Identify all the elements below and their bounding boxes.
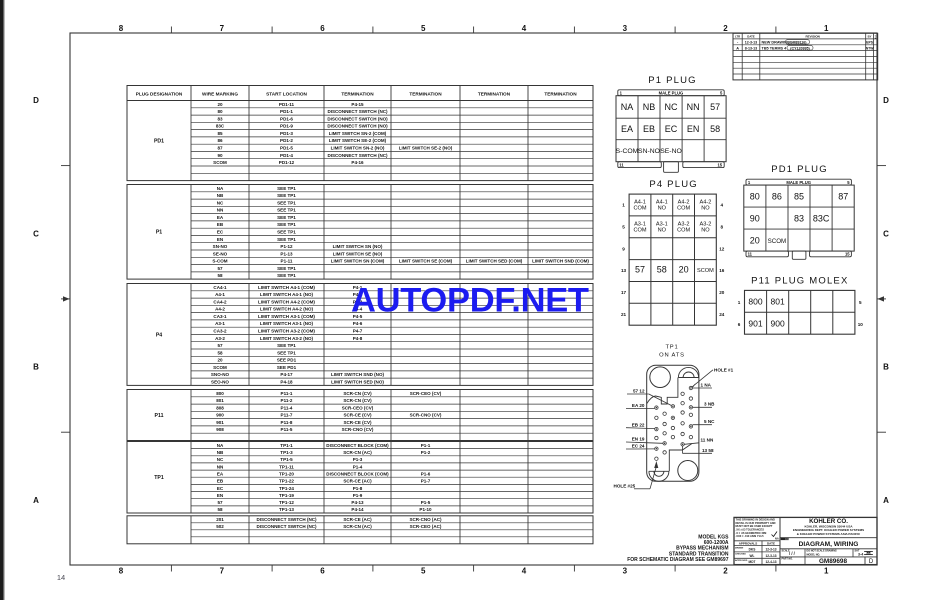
svg-text:P1-5: P1-5 bbox=[421, 500, 431, 505]
svg-text:PD1-9: PD1-9 bbox=[280, 124, 293, 129]
svg-text:PD1-11: PD1-11 bbox=[279, 102, 295, 107]
svg-text:8: 8 bbox=[119, 567, 124, 576]
svg-text:20: 20 bbox=[217, 102, 223, 107]
svg-text:NC: NC bbox=[665, 102, 678, 112]
svg-text:90: 90 bbox=[217, 153, 223, 158]
svg-text:14: 14 bbox=[57, 573, 65, 582]
svg-text:SEE TP1: SEE TP1 bbox=[277, 186, 296, 191]
svg-text:P11-8: P11-8 bbox=[281, 420, 293, 425]
svg-text:CA4-2: CA4-2 bbox=[213, 299, 227, 304]
svg-text:WL: WL bbox=[750, 554, 755, 558]
svg-text:12: 12 bbox=[719, 246, 725, 251]
svg-text:SN-NO: SN-NO bbox=[638, 148, 660, 155]
svg-text:1: 1 bbox=[824, 24, 829, 33]
svg-text:LIMIT SWITCH A3-2 (COM): LIMIT SWITCH A3-2 (COM) bbox=[258, 329, 315, 334]
svg-text:TERMINATION: TERMINATION bbox=[409, 91, 442, 96]
svg-text:20: 20 bbox=[750, 236, 760, 246]
svg-text:LIMIT SWITCH A4-1 (NO): LIMIT SWITCH A4-1 (NO) bbox=[260, 292, 314, 297]
svg-text:DO NOT SCALE DRAWING: DO NOT SCALE DRAWING bbox=[807, 549, 837, 552]
svg-text:57: 57 bbox=[710, 102, 720, 112]
svg-text:P11-7: P11-7 bbox=[281, 413, 293, 418]
svg-text:83C: 83C bbox=[216, 124, 225, 129]
svg-text:PD1-1: PD1-1 bbox=[280, 109, 293, 114]
svg-text:REVISION: REVISION bbox=[806, 35, 820, 39]
svg-text:NN: NN bbox=[217, 464, 224, 469]
svg-text:6: 6 bbox=[320, 24, 325, 33]
svg-text:NA: NA bbox=[621, 102, 634, 112]
svg-text:DATE: DATE bbox=[767, 542, 775, 546]
svg-text:57: 57 bbox=[217, 266, 223, 271]
svg-text:16: 16 bbox=[719, 268, 725, 273]
svg-text:P1-1: P1-1 bbox=[421, 443, 431, 448]
svg-text:LIMIT SWITCH SED (COM): LIMIT SWITCH SED (COM) bbox=[466, 259, 523, 264]
svg-text:P4-14: P4-14 bbox=[351, 507, 364, 512]
svg-text:12-3-13: 12-3-13 bbox=[766, 554, 777, 558]
svg-text:TP1-11: TP1-11 bbox=[279, 464, 294, 469]
svg-text:DISCONNECT SWITCH (NC): DISCONNECT SWITCH (NC) bbox=[256, 524, 317, 529]
svg-text:ON ATS: ON ATS bbox=[659, 353, 685, 359]
svg-text:P11-1: P11-1 bbox=[281, 391, 293, 396]
svg-text:LIMIT SWITCH SN-2 (COM): LIMIT SWITCH SN-2 (COM) bbox=[329, 131, 387, 136]
svg-text:EN: EN bbox=[217, 493, 223, 498]
svg-text:S-COM: S-COM bbox=[212, 259, 227, 264]
svg-text:SNO-NO: SNO-NO bbox=[211, 372, 230, 377]
svg-text:DKS: DKS bbox=[749, 548, 756, 552]
svg-text:LIMIT SWITCH SE (NO): LIMIT SWITCH SE (NO) bbox=[333, 251, 383, 256]
svg-text:P1-3: P1-3 bbox=[353, 457, 363, 462]
svg-text:(CY120995): (CY120995) bbox=[790, 46, 810, 50]
svg-text:BY: BY bbox=[868, 35, 872, 39]
svg-text:MDT: MDT bbox=[749, 560, 756, 564]
svg-text:WIRE MARKING: WIRE MARKING bbox=[202, 91, 238, 96]
svg-text:NO: NO bbox=[701, 227, 710, 233]
svg-text:SCR-CN (CV): SCR-CN (CV) bbox=[343, 398, 372, 403]
svg-text:P4-6: P4-6 bbox=[353, 321, 363, 326]
svg-text:20: 20 bbox=[217, 358, 223, 363]
svg-text:80: 80 bbox=[217, 109, 223, 114]
svg-text:SEE TP1: SEE TP1 bbox=[277, 208, 296, 213]
svg-text:LIMIT SWITCH A3-2 (NO): LIMIT SWITCH A3-2 (NO) bbox=[260, 336, 314, 341]
svg-text:SCR-CE (CV): SCR-CE (CV) bbox=[343, 413, 372, 418]
svg-text:5 NC: 5 NC bbox=[704, 419, 715, 424]
svg-text:CHECKED: CHECKED bbox=[735, 554, 746, 556]
svg-text:15: 15 bbox=[845, 252, 850, 257]
svg-text:D: D bbox=[883, 96, 889, 105]
svg-text:NTW: NTW bbox=[866, 46, 875, 50]
svg-text:20: 20 bbox=[719, 290, 725, 295]
svg-text:8: 8 bbox=[721, 225, 724, 230]
svg-text:APPROVALS: APPROVALS bbox=[739, 542, 757, 546]
svg-text:TP1-5: TP1-5 bbox=[280, 457, 293, 462]
svg-text:CA4-1: CA4-1 bbox=[213, 285, 227, 290]
svg-text:COM: COM bbox=[677, 206, 690, 212]
svg-text:P4-16: P4-16 bbox=[351, 160, 364, 165]
svg-text:& KOHLER POWER SYSTEMS ASIA PA: & KOHLER POWER SYSTEMS ASIA PACIFIC bbox=[797, 532, 861, 536]
svg-text:DISCONNECT SWITCH (NC): DISCONNECT SWITCH (NC) bbox=[327, 109, 388, 114]
svg-text:A: A bbox=[736, 46, 739, 50]
svg-text:9: 9 bbox=[622, 246, 625, 251]
svg-text:57: 57 bbox=[217, 500, 223, 505]
svg-text:SEE TP1: SEE TP1 bbox=[277, 266, 296, 271]
svg-text:P1-2: P1-2 bbox=[421, 450, 431, 455]
svg-text:86: 86 bbox=[772, 192, 782, 202]
svg-text:SEE TP1: SEE TP1 bbox=[277, 273, 296, 278]
svg-text:LIMIT SWITCH SND (NO): LIMIT SWITCH SND (NO) bbox=[331, 372, 385, 377]
svg-text:LIMIT SWITCH SN (NO): LIMIT SWITCH SN (NO) bbox=[333, 244, 383, 249]
svg-text:TERMINATION: TERMINATION bbox=[478, 91, 511, 96]
svg-text:SEE TP1: SEE TP1 bbox=[277, 200, 296, 205]
svg-text:SCR-CE (AC): SCR-CE (AC) bbox=[343, 479, 372, 484]
svg-text:P1-11: P1-11 bbox=[281, 259, 293, 264]
svg-text:TB5 TERMS 4: TB5 TERMS 4 bbox=[762, 46, 788, 50]
svg-text:NC: NC bbox=[217, 457, 224, 462]
svg-text:EN: EN bbox=[217, 237, 223, 242]
svg-text:PLUG DESIGNATION: PLUG DESIGNATION bbox=[136, 91, 183, 96]
svg-text:1 NA: 1 NA bbox=[701, 383, 712, 388]
svg-text:(GM89116): (GM89116) bbox=[789, 40, 808, 44]
svg-text:LIMIT SWITCH A4-2 (COM): LIMIT SWITCH A4-2 (COM) bbox=[258, 299, 315, 304]
svg-text:5: 5 bbox=[421, 24, 426, 33]
svg-text:87: 87 bbox=[838, 192, 848, 202]
svg-text:58: 58 bbox=[657, 265, 667, 275]
svg-text:A4-2: A4-2 bbox=[215, 307, 225, 312]
svg-text:12-4-13: 12-4-13 bbox=[766, 560, 777, 564]
svg-text:EC: EC bbox=[665, 124, 678, 134]
svg-text:EB: EB bbox=[217, 222, 224, 227]
svg-text:2: 2 bbox=[723, 567, 728, 576]
svg-text:12-3-13: 12-3-13 bbox=[745, 40, 757, 44]
svg-text:5: 5 bbox=[421, 567, 426, 576]
svg-text:3: 3 bbox=[623, 24, 628, 33]
svg-text:EA: EA bbox=[217, 472, 224, 477]
svg-text:15: 15 bbox=[717, 163, 722, 168]
svg-text:SEE TP1: SEE TP1 bbox=[277, 237, 296, 242]
svg-text:EN: EN bbox=[687, 124, 700, 134]
svg-text:/ / /: / / / bbox=[789, 551, 796, 556]
svg-text:TP1-13: TP1-13 bbox=[279, 507, 294, 512]
svg-text:502: 502 bbox=[216, 524, 224, 529]
svg-text:SEE TP1: SEE TP1 bbox=[277, 215, 296, 220]
svg-text:NC: NC bbox=[217, 200, 224, 205]
svg-text:MODEL NO.: MODEL NO. bbox=[807, 554, 821, 557]
svg-text:85: 85 bbox=[217, 131, 223, 136]
svg-text:1: 1 bbox=[738, 300, 741, 305]
svg-text:PD1: PD1 bbox=[154, 138, 164, 144]
svg-text:LIMIT SWITCH SE-2 (NO): LIMIT SWITCH SE-2 (NO) bbox=[399, 146, 453, 151]
svg-text:APPROVED: APPROVED bbox=[735, 559, 748, 562]
svg-text:MALE PLUG: MALE PLUG bbox=[786, 180, 811, 185]
svg-text:58: 58 bbox=[217, 507, 223, 512]
svg-text:.XXX ± .010 ANSI Y14.5: .XXX ± .010 ANSI Y14.5 bbox=[736, 534, 765, 538]
svg-text:CA3-2: CA3-2 bbox=[213, 329, 227, 334]
svg-text:TERMINATION: TERMINATION bbox=[341, 91, 374, 96]
svg-text:4: 4 bbox=[522, 567, 527, 576]
svg-text:EPS: EPS bbox=[866, 40, 874, 44]
svg-text:P4-15: P4-15 bbox=[351, 102, 364, 107]
svg-text:SEE TP1: SEE TP1 bbox=[277, 350, 296, 355]
svg-text:EC: EC bbox=[217, 230, 224, 235]
svg-text:DISCONNECT SWITCH (NC): DISCONNECT SWITCH (NC) bbox=[256, 517, 317, 522]
svg-text:COM: COM bbox=[633, 206, 646, 212]
svg-text:DIAGRAM, WIRING: DIAGRAM, WIRING bbox=[799, 541, 859, 548]
svg-text:DISCONNECT BLOCK (COM): DISCONNECT BLOCK (COM) bbox=[326, 443, 389, 448]
svg-text:12-3-13: 12-3-13 bbox=[766, 548, 777, 552]
svg-text:DISCONNECT SWITCH (NC): DISCONNECT SWITCH (NC) bbox=[327, 153, 388, 158]
svg-text:NB: NB bbox=[217, 450, 224, 455]
svg-text:PART NO.: PART NO. bbox=[782, 557, 794, 560]
svg-text:SEE PD1: SEE PD1 bbox=[277, 358, 297, 363]
svg-text:B: B bbox=[33, 363, 39, 372]
svg-text:P11: P11 bbox=[155, 413, 164, 419]
svg-text:LIMIT SWITCH SED (NO): LIMIT SWITCH SED (NO) bbox=[331, 380, 384, 385]
svg-text:8-13-13: 8-13-13 bbox=[745, 46, 757, 50]
svg-text:P4-8: P4-8 bbox=[353, 336, 363, 341]
svg-text:5: 5 bbox=[859, 300, 862, 305]
svg-text:A: A bbox=[33, 496, 39, 505]
svg-text:4: 4 bbox=[522, 24, 527, 33]
svg-text:PD1-4: PD1-4 bbox=[280, 153, 293, 158]
svg-text:NA: NA bbox=[217, 443, 224, 448]
svg-text:A4-1: A4-1 bbox=[215, 292, 225, 297]
svg-text:1: 1 bbox=[824, 567, 829, 576]
svg-text:DISCONNECT SWITCH (NO): DISCONNECT SWITCH (NO) bbox=[327, 124, 388, 129]
svg-text:TP1-22: TP1-22 bbox=[279, 479, 294, 484]
svg-text:P1-12: P1-12 bbox=[280, 244, 293, 249]
svg-text:6: 6 bbox=[320, 567, 325, 576]
svg-text:TP1-19: TP1-19 bbox=[279, 493, 294, 498]
svg-text:7: 7 bbox=[220, 567, 225, 576]
svg-text:13 58: 13 58 bbox=[702, 448, 714, 453]
svg-text:85: 85 bbox=[794, 192, 804, 202]
svg-text:17: 17 bbox=[621, 290, 627, 295]
svg-text:P4-17: P4-17 bbox=[280, 372, 293, 377]
svg-text:C: C bbox=[33, 229, 39, 238]
svg-text:3: 3 bbox=[623, 567, 628, 576]
svg-text:NO: NO bbox=[658, 206, 667, 212]
svg-text:P11-4: P11-4 bbox=[281, 405, 293, 410]
svg-text:TERMINATION: TERMINATION bbox=[544, 91, 577, 96]
svg-text:EC 24: EC 24 bbox=[632, 444, 645, 449]
svg-text:SCR-CEO (AC): SCR-CEO (AC) bbox=[410, 524, 442, 529]
svg-text:START LOCATION: START LOCATION bbox=[266, 91, 307, 96]
svg-text:SCR-CNO (AC): SCR-CNO (AC) bbox=[409, 517, 442, 522]
svg-text:TP1-24: TP1-24 bbox=[279, 486, 294, 491]
svg-text:908: 908 bbox=[216, 427, 224, 432]
svg-text:P1 PLUG: P1 PLUG bbox=[648, 75, 697, 86]
svg-text:80: 80 bbox=[750, 192, 760, 202]
svg-text:5: 5 bbox=[622, 225, 625, 230]
svg-text:EB: EB bbox=[643, 124, 655, 134]
svg-text:SCR-CN (AC): SCR-CN (AC) bbox=[343, 524, 372, 529]
svg-text:P1-13: P1-13 bbox=[280, 251, 293, 256]
svg-text:3 NB: 3 NB bbox=[704, 402, 715, 407]
svg-text:COM: COM bbox=[677, 227, 690, 233]
svg-text:PD1 PLUG: PD1 PLUG bbox=[771, 164, 828, 175]
svg-text:SEE TP1: SEE TP1 bbox=[277, 343, 296, 348]
svg-text:SN-NO: SN-NO bbox=[213, 244, 228, 249]
svg-text:NA: NA bbox=[217, 186, 224, 191]
svg-text:LIMIT SWITCH A4-1 (COM): LIMIT SWITCH A4-1 (COM) bbox=[258, 285, 315, 290]
svg-text:P11-2: P11-2 bbox=[281, 398, 293, 403]
svg-text:11 NN: 11 NN bbox=[701, 438, 714, 443]
svg-text:DATE: DATE bbox=[747, 35, 755, 39]
svg-text:LIMIT SWITCH SND (COM): LIMIT SWITCH SND (COM) bbox=[532, 259, 589, 264]
svg-text:P4-13: P4-13 bbox=[351, 500, 364, 505]
svg-text:201: 201 bbox=[216, 517, 224, 522]
svg-text:83C: 83C bbox=[813, 214, 830, 224]
svg-text:901: 901 bbox=[216, 420, 224, 425]
svg-text:DISCONNECT BLOCK (COM): DISCONNECT BLOCK (COM) bbox=[326, 472, 389, 477]
svg-text:PD1-6: PD1-6 bbox=[280, 116, 293, 121]
svg-text:SCOM: SCOM bbox=[213, 160, 227, 165]
svg-text:NO: NO bbox=[701, 206, 710, 212]
svg-text:TITLE: TITLE bbox=[785, 539, 791, 541]
svg-text:P1-9: P1-9 bbox=[353, 493, 363, 498]
svg-text:P11 PLUG MOLEX: P11 PLUG MOLEX bbox=[751, 276, 848, 287]
svg-text:EA: EA bbox=[217, 215, 224, 220]
svg-text:PD1-3: PD1-3 bbox=[280, 131, 293, 136]
svg-text:11: 11 bbox=[748, 252, 753, 257]
svg-text:8: 8 bbox=[119, 24, 124, 33]
svg-text:P4-18: P4-18 bbox=[280, 380, 293, 385]
svg-text:TP1: TP1 bbox=[665, 345, 678, 351]
svg-text:900: 900 bbox=[771, 318, 785, 328]
svg-text:LIMIT SWITCH A4-2 (NO): LIMIT SWITCH A4-2 (NO) bbox=[260, 307, 314, 312]
svg-text:86: 86 bbox=[217, 138, 223, 143]
svg-text:808: 808 bbox=[216, 405, 224, 410]
svg-text:A3-2: A3-2 bbox=[215, 336, 225, 341]
svg-text:SEE TP1: SEE TP1 bbox=[277, 222, 296, 227]
svg-text:24: 24 bbox=[719, 312, 725, 317]
svg-text:P1-6: P1-6 bbox=[421, 472, 431, 477]
svg-text:800: 800 bbox=[216, 391, 224, 396]
svg-text:P4 PLUG: P4 PLUG bbox=[649, 179, 698, 190]
svg-text:83: 83 bbox=[217, 116, 223, 121]
svg-text:P4: P4 bbox=[156, 332, 162, 338]
svg-text:6: 6 bbox=[738, 322, 741, 327]
svg-text:CA3-1: CA3-1 bbox=[213, 314, 227, 319]
svg-text:57: 57 bbox=[635, 265, 645, 275]
svg-text:10: 10 bbox=[858, 322, 864, 327]
svg-text:57: 57 bbox=[217, 343, 223, 348]
svg-text:EB 22: EB 22 bbox=[632, 422, 645, 427]
svg-text:P11-5: P11-5 bbox=[281, 427, 293, 432]
svg-text:PD1-2: PD1-2 bbox=[280, 138, 293, 143]
svg-text:EB: EB bbox=[217, 479, 224, 484]
svg-text:13: 13 bbox=[621, 268, 627, 273]
svg-text:TP1-1: TP1-1 bbox=[280, 443, 293, 448]
svg-text:SCR-CNO (CV): SCR-CNO (CV) bbox=[342, 427, 374, 432]
svg-text:900: 900 bbox=[216, 413, 224, 418]
svg-text:EN 19: EN 19 bbox=[632, 437, 645, 442]
svg-text:1: 1 bbox=[622, 203, 625, 208]
svg-text:TP1: TP1 bbox=[154, 475, 164, 481]
svg-text:DISCONNECT SWITCH (NO): DISCONNECT SWITCH (NO) bbox=[327, 116, 388, 121]
svg-text:SCOM: SCOM bbox=[768, 238, 787, 245]
svg-text:801: 801 bbox=[216, 398, 224, 403]
svg-text:LIMIT SWITCH SE-2 (COM): LIMIT SWITCH SE-2 (COM) bbox=[329, 138, 387, 143]
svg-text:4: 4 bbox=[721, 203, 724, 208]
svg-text:21: 21 bbox=[621, 312, 627, 317]
svg-text:B: B bbox=[883, 363, 889, 372]
svg-text:20: 20 bbox=[679, 265, 689, 275]
svg-text:NB: NB bbox=[643, 102, 656, 112]
svg-text:D: D bbox=[869, 559, 874, 565]
svg-text:AUTOPDF.NET: AUTOPDF.NET bbox=[351, 282, 589, 320]
svg-text:SEE TP1: SEE TP1 bbox=[277, 230, 296, 235]
svg-text:SEE PD1: SEE PD1 bbox=[277, 365, 297, 370]
svg-text:90: 90 bbox=[750, 214, 760, 224]
svg-text:800: 800 bbox=[748, 297, 762, 307]
svg-text:SCR-CN (AC): SCR-CN (AC) bbox=[343, 450, 372, 455]
svg-text:SEE TP1: SEE TP1 bbox=[277, 193, 296, 198]
svg-text:TP1-20: TP1-20 bbox=[279, 472, 294, 477]
svg-text:LTR: LTR bbox=[735, 35, 740, 39]
svg-text:SCR-CE (AC): SCR-CE (AC) bbox=[343, 517, 372, 522]
svg-text:NO: NO bbox=[658, 227, 667, 233]
svg-text:SCOM: SCOM bbox=[213, 365, 227, 370]
svg-text:P4-7: P4-7 bbox=[353, 329, 363, 334]
svg-text:58: 58 bbox=[710, 124, 720, 134]
svg-text:57 12: 57 12 bbox=[633, 389, 645, 394]
svg-text:LIMIT SWITCH SN (COM): LIMIT SWITCH SN (COM) bbox=[331, 259, 385, 264]
svg-text:EC: EC bbox=[217, 486, 224, 491]
svg-text:P1: P1 bbox=[156, 230, 162, 236]
svg-text:TP1-3: TP1-3 bbox=[280, 450, 293, 455]
svg-text:SCR-CNO (CV): SCR-CNO (CV) bbox=[410, 413, 442, 418]
svg-text:SEO-NO: SEO-NO bbox=[211, 380, 229, 385]
svg-text:MALE PLUG: MALE PLUG bbox=[659, 91, 684, 96]
svg-text:SE-NO: SE-NO bbox=[660, 148, 682, 155]
svg-text:GM89698: GM89698 bbox=[819, 558, 848, 565]
svg-text:P1-4: P1-4 bbox=[353, 464, 363, 469]
svg-text:FOR SCHEMATIC DIAGRAM SEE GM89: FOR SCHEMATIC DIAGRAM SEE GM89697 bbox=[627, 557, 729, 563]
svg-text:EA: EA bbox=[621, 124, 633, 134]
svg-text:EA 20: EA 20 bbox=[632, 403, 645, 408]
svg-text:C: C bbox=[883, 229, 889, 238]
svg-text:58: 58 bbox=[217, 350, 223, 355]
svg-text:901: 901 bbox=[748, 318, 762, 328]
svg-text:TP1-12: TP1-12 bbox=[279, 500, 294, 505]
svg-text:P1-10: P1-10 bbox=[419, 507, 432, 512]
svg-text:LIMIT SWITCH SN-2 (NO): LIMIT SWITCH SN-2 (NO) bbox=[331, 146, 385, 151]
svg-text:3-4: 3-4 bbox=[858, 552, 863, 556]
svg-text:NN: NN bbox=[217, 208, 224, 213]
svg-text:PD1-12: PD1-12 bbox=[279, 160, 295, 165]
svg-text:NB: NB bbox=[217, 193, 224, 198]
svg-text:SE-NO: SE-NO bbox=[213, 251, 228, 256]
svg-text:2: 2 bbox=[723, 24, 728, 33]
svg-text:SCR-CEO (CV): SCR-CEO (CV) bbox=[342, 405, 374, 410]
svg-text:801: 801 bbox=[771, 297, 785, 307]
svg-text:S-COM: S-COM bbox=[616, 148, 639, 155]
svg-text:58: 58 bbox=[217, 273, 223, 278]
svg-text:DRAWN: DRAWN bbox=[735, 546, 744, 549]
svg-text:87: 87 bbox=[217, 146, 223, 151]
svg-text:COM: COM bbox=[633, 227, 646, 233]
svg-text:P1-7: P1-7 bbox=[421, 479, 431, 484]
svg-text:SCR-CE (CV): SCR-CE (CV) bbox=[343, 420, 372, 425]
svg-text:LIMIT SWITCH A3-1 (COM): LIMIT SWITCH A3-1 (COM) bbox=[258, 314, 315, 319]
svg-text:SCR-CEO (CV): SCR-CEO (CV) bbox=[410, 391, 442, 396]
svg-text:HOLE #25: HOLE #25 bbox=[614, 484, 636, 489]
svg-text:11: 11 bbox=[619, 163, 624, 168]
svg-text:A3-1: A3-1 bbox=[215, 321, 225, 326]
svg-text:A: A bbox=[883, 496, 889, 505]
svg-text:LIMIT SWITCH A3-1 (NO): LIMIT SWITCH A3-1 (NO) bbox=[260, 321, 314, 326]
svg-text:HOLE #1: HOLE #1 bbox=[714, 368, 734, 373]
svg-text:NA: NA bbox=[775, 537, 779, 541]
